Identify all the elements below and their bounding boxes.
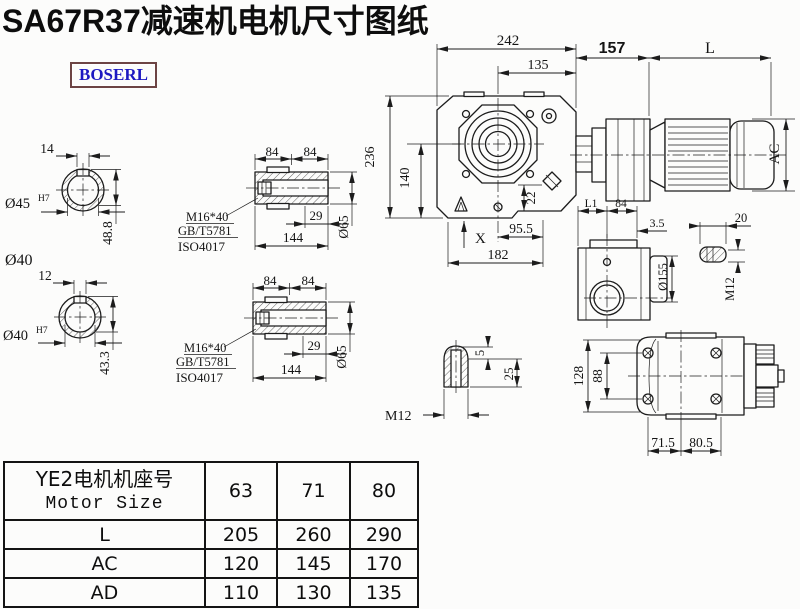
cell-value: 135 <box>350 578 418 607</box>
motor-size-80: 80 <box>350 462 418 520</box>
dim-25: 25 <box>470 359 522 387</box>
motor-size-71: 71 <box>277 462 350 520</box>
technical-drawing: 14 Ø45 H7 48.8 Ø40 <box>0 0 800 460</box>
dim-label: 140 <box>398 168 413 189</box>
dim-20: 20 <box>689 211 751 244</box>
dim-71-5-80-5: 71.5 80.5 <box>648 417 721 456</box>
dim-label: 14 <box>40 141 54 156</box>
dim-label: Ø65 <box>336 215 351 238</box>
dim-label: 29 <box>310 208 323 223</box>
bolt-spec-callout: M16*40 GB/T5781 ISO4017 <box>176 329 256 385</box>
dim-95-5: 95.5 <box>498 220 543 242</box>
dim-label: 135 <box>528 58 549 73</box>
dim-label: 25 <box>501 368 516 381</box>
dim-84-84: 84 84 <box>253 273 326 300</box>
dim-label: 128 <box>571 366 586 387</box>
header-motor-size: YE2电机机座号 Motor Size <box>4 462 205 520</box>
dim-label: X <box>475 231 486 247</box>
view-hollow-shaft-top: 84 84 29 144 Ø65 <box>178 144 357 254</box>
dim-label: 48.8 <box>100 221 115 245</box>
cell-value: 290 <box>350 520 418 549</box>
view-bottom: 128 88 71.5 80.5 <box>571 330 784 456</box>
cell-value: 260 <box>277 520 350 549</box>
cell-value: 145 <box>277 549 350 578</box>
standard-gb: GB/T5781 <box>176 355 229 369</box>
dim-label: 182 <box>488 248 509 263</box>
bolt-spec: M16*40 <box>186 210 228 224</box>
cell-value: 110 <box>205 578 277 607</box>
view-hollow-shaft-bottom: 84 84 29 144 Ø65 <box>176 273 355 385</box>
row-label: L <box>4 520 205 549</box>
dim-label: 88 <box>590 369 605 383</box>
table-row-L: L 205 260 290 <box>4 520 418 549</box>
drawing-sheet: SA67R37减速机电机尺寸图纸 BOSERL 14 <box>0 0 800 609</box>
dim-label: 43.3 <box>97 351 112 375</box>
dim-keyway-width: 12 <box>38 268 107 294</box>
dim-label: 20 <box>735 211 748 225</box>
dim-X: X <box>464 221 486 248</box>
dim-label: L1 <box>585 198 598 210</box>
table-row-AC: AC 120 145 170 <box>4 549 418 578</box>
dim-157: 157 <box>576 40 649 116</box>
dim-motor-length-L: L <box>649 40 771 116</box>
dim-M12-stud: M12 <box>723 239 745 301</box>
dim-5: 5 <box>462 338 522 368</box>
dim-label: 80.5 <box>689 435 713 450</box>
dim-label: 29 <box>308 338 321 353</box>
dim-135: 135 <box>498 58 576 94</box>
dim-label: M12 <box>385 409 411 424</box>
motor-size-table: YE2电机机座号 Motor Size 63 71 80 L 205 260 2… <box>3 461 419 608</box>
table-header-row: YE2电机机座号 Motor Size 63 71 80 <box>4 462 418 520</box>
dim-M12-thread: M12 <box>385 389 489 424</box>
standard-iso: ISO4017 <box>176 370 223 385</box>
dim-keyway-width: 14 <box>40 141 110 167</box>
dim-label: L <box>705 40 715 57</box>
dim-label: 5 <box>473 350 487 356</box>
view-shaft-end-bottom: 12 Ø40 H7 43.3 <box>3 268 122 375</box>
dim-label: Ø40 <box>3 328 28 344</box>
shaft-hub <box>756 365 778 387</box>
dim-label: Ø155 <box>656 263 670 291</box>
dim-label: 84 <box>615 198 627 210</box>
table-row-AD: AD 110 130 135 <box>4 578 418 607</box>
dim-label: 3.5 <box>650 216 665 230</box>
dim-tolerance: H7 <box>38 194 50 204</box>
dim-label: Ø45 <box>5 196 30 212</box>
dim-label: 84 <box>264 273 278 288</box>
dim-84-84: 84 84 <box>255 144 328 170</box>
standard-iso: ISO4017 <box>178 239 225 254</box>
dim-dia-65: Ø65 <box>330 172 357 239</box>
motor-flange <box>606 119 650 201</box>
bolt-spec-callout: M16*40 GB/T5781 ISO4017 <box>178 198 258 254</box>
dim-label: 22 <box>523 192 538 205</box>
dim-tolerance: H7 <box>36 326 48 336</box>
cell-value: 170 <box>350 549 418 578</box>
view-gearbox-side: L1 84 3.5 Ø155 20 <box>578 198 751 330</box>
cell-value: 130 <box>277 578 350 607</box>
standard-gb: GB/T5781 <box>178 224 231 238</box>
dim-label: 12 <box>38 268 52 283</box>
row-label: AD <box>4 578 205 607</box>
view-front-gearmotor: 242 135 157 L 236 <box>363 33 795 267</box>
cell-value: 205 <box>205 520 277 549</box>
header-en: Motor Size <box>5 492 204 516</box>
dim-3-5: 3.5 <box>637 216 667 231</box>
dim-label: 71.5 <box>651 435 675 450</box>
dim-dia-65: Ø65 <box>328 302 355 369</box>
dim-L1-84: L1 84 <box>578 198 637 246</box>
dim-label: 84 <box>304 144 318 159</box>
dim-label: 84 <box>302 273 316 288</box>
view-keyway-detail: 5 25 M12 <box>385 338 522 424</box>
dim-label: 84 <box>266 144 280 159</box>
dim-label: 144 <box>281 362 302 377</box>
dim-label: Ø65 <box>334 345 349 368</box>
header-cn: YE2电机机座号 <box>5 466 204 492</box>
shaft-od-label: Ø40 <box>5 252 33 269</box>
dim-label: AC <box>767 144 783 165</box>
row-label: AC <box>4 549 205 578</box>
view-shaft-end-top: 14 Ø45 H7 48.8 Ø40 <box>5 141 125 269</box>
dim-label: 157 <box>599 40 626 57</box>
cell-value: 120 <box>205 549 277 578</box>
input-coupling <box>576 136 592 172</box>
dim-label: 144 <box>283 230 304 245</box>
motor-size-63: 63 <box>205 462 277 520</box>
dim-label: 95.5 <box>509 221 533 236</box>
dim-236: 236 <box>363 96 449 218</box>
dim-label: M12 <box>723 277 737 301</box>
dim-label: 242 <box>497 33 520 49</box>
dim-label: 236 <box>363 147 378 168</box>
bolt-spec: M16*40 <box>184 341 226 355</box>
